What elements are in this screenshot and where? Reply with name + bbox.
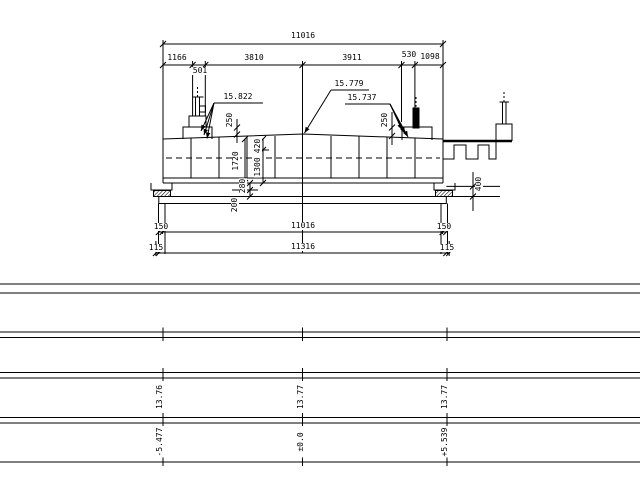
dim-curb-left-250: 250 xyxy=(226,112,234,128)
dim-depth-200: 200 xyxy=(231,197,239,213)
dim-depth-420: 420 xyxy=(254,138,262,154)
dim-overall-top: 11016 xyxy=(290,32,316,40)
dim-seg-501: 501 xyxy=(192,67,208,75)
cad-drawing-sheet: 11016 1166 3810 3911 530 1098 501 15.822… xyxy=(0,0,640,480)
dim-depth-1720: 1720 xyxy=(232,150,240,171)
elevation-left: 15.822 xyxy=(223,93,254,101)
elevation-center: 15.779 xyxy=(334,80,365,88)
station-offset-right: +5.539 xyxy=(441,427,449,458)
station-level-right: 13.77 xyxy=(441,384,449,410)
dim-seg-1098: 1098 xyxy=(419,53,440,61)
dim-curb-right-250: 250 xyxy=(381,112,389,128)
dim-seg-1166: 1166 xyxy=(166,54,187,62)
station-offset-left: -5.477 xyxy=(156,427,164,458)
elevation-right: 15.737 xyxy=(347,94,378,102)
left-railing xyxy=(183,87,212,139)
dim-cap-400: 400 xyxy=(475,176,483,192)
expansion-joint-comb xyxy=(443,92,512,159)
profile-lines xyxy=(0,284,640,466)
dim-depth-1300: 1300 xyxy=(254,156,262,177)
dim-bottom-11316: 11316 xyxy=(290,243,316,251)
station-level-center: 13.77 xyxy=(297,384,305,410)
dim-seg-3911: 3911 xyxy=(341,54,362,62)
dim-depth-280: 280 xyxy=(239,178,247,194)
station-offset-center: ±0.0 xyxy=(297,431,305,452)
dim-bottom-11016: 11016 xyxy=(290,222,316,230)
station-level-left: 13.76 xyxy=(156,384,164,410)
dim-bottom-150-left: 150 xyxy=(153,223,169,231)
drawing-canvas xyxy=(0,0,640,480)
dim-bottom-150-right: 150 xyxy=(436,223,452,231)
dim-seg-3810: 3810 xyxy=(243,54,264,62)
dim-bottom-115-left: 115 xyxy=(148,244,164,252)
dim-seg-530: 530 xyxy=(401,51,417,59)
dim-bottom-115-right: 115 xyxy=(439,244,455,252)
